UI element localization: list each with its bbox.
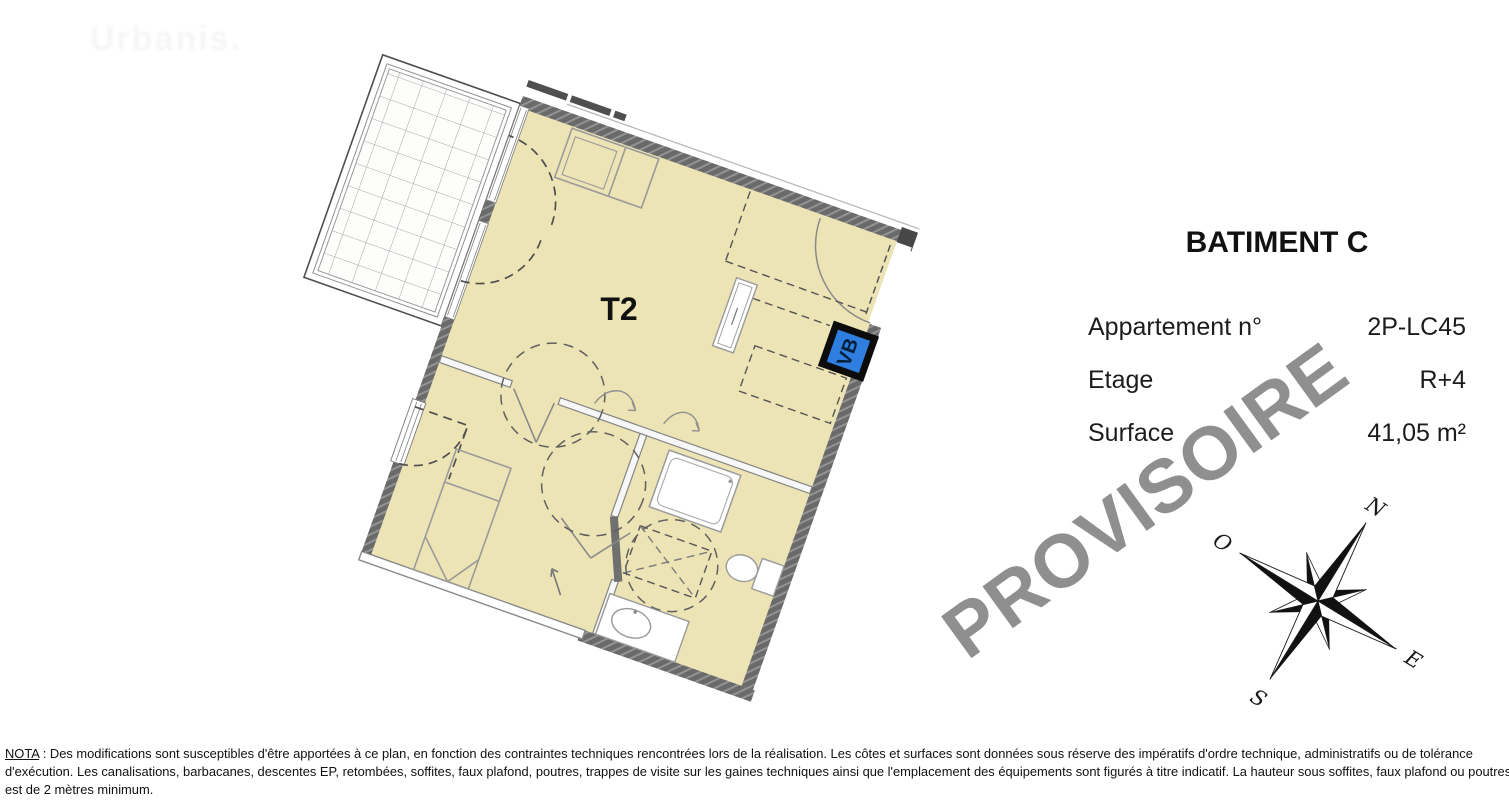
floor-value: R+4	[1419, 366, 1466, 395]
surface-value: 41,05 m²	[1367, 419, 1466, 448]
floor-label: Etage	[1088, 366, 1153, 395]
building-title: BATIMENT C	[1088, 226, 1466, 260]
compass-cardinal-points	[1191, 474, 1444, 727]
apartment-number-label: Appartement n°	[1088, 313, 1262, 342]
nota-line2: d'exécution. Les canalisations, barbacan…	[5, 763, 1507, 781]
compass-east-label: E	[1400, 645, 1426, 674]
apartment-plan: VB	[220, 31, 923, 702]
apartment-number-value: 2P-LC45	[1367, 313, 1466, 342]
nota-disclaimer: NOTA : Des modifications sont susceptibl…	[5, 745, 1507, 800]
unit-label: T2	[600, 291, 637, 327]
info-row-apartment: Appartement n° 2P-LC45	[1088, 313, 1466, 342]
floor-plan-page: Urbanis.	[0, 0, 1509, 800]
compass-west-label: O	[1209, 528, 1236, 557]
nota-line1: NOTA : Des modifications sont susceptibl…	[5, 745, 1507, 763]
info-panel: BATIMENT C Appartement n° 2P-LC45 Etage …	[1088, 226, 1466, 260]
nota-label: NOTA	[5, 746, 39, 761]
nota-line3: est de 2 mètres minimum.	[5, 781, 1507, 799]
compass-south-label: S	[1246, 684, 1271, 712]
compass-north-label: N	[1361, 492, 1391, 523]
